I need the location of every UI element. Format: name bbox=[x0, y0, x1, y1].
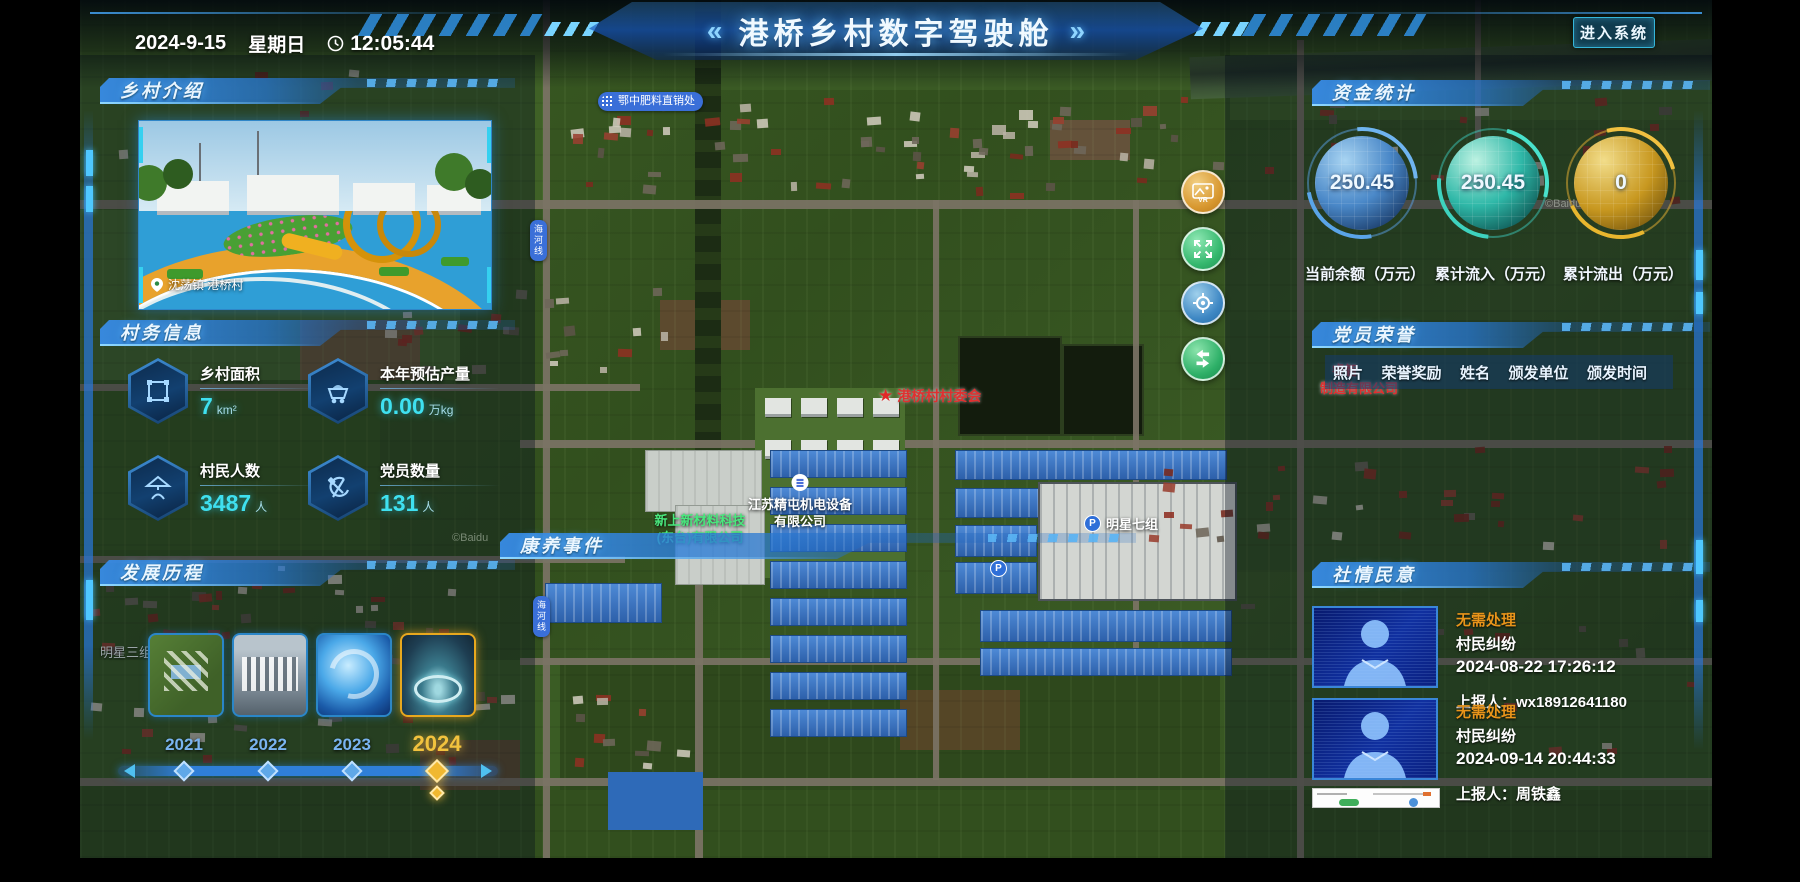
panel-health-header: 康养事件 bbox=[500, 533, 1136, 559]
history-thumb-2022[interactable] bbox=[232, 633, 308, 717]
location-pin-icon bbox=[151, 278, 163, 292]
map-feature bbox=[620, 127, 632, 137]
map-feature bbox=[730, 173, 742, 182]
map-feature bbox=[801, 398, 827, 417]
stat-party-member-count: 党员数量 131人 bbox=[308, 455, 500, 521]
party-emblem-icon bbox=[308, 455, 368, 521]
map-feature bbox=[125, 598, 138, 605]
map-feature bbox=[1331, 531, 1342, 540]
map-feature bbox=[1573, 515, 1584, 522]
map-feature bbox=[134, 707, 145, 717]
gauge-label-outflow: 累计流出（万元） bbox=[1538, 263, 1708, 284]
map-feature bbox=[632, 328, 641, 337]
current-date: 2024-9-15 bbox=[135, 32, 226, 55]
panel-funds-title: 资金统计 bbox=[1312, 80, 1710, 106]
map-feature bbox=[916, 174, 925, 180]
map-feature bbox=[635, 751, 650, 757]
expand-icon bbox=[1192, 238, 1214, 260]
stat-estimated-output: 本年预估产量 0.00万kg bbox=[308, 358, 500, 424]
map-feature bbox=[1143, 159, 1154, 170]
sentiment-item-1[interactable]: 无需处理 村民纠纷 2024-08-22 17:26:12 上报人：wx1891… bbox=[1312, 606, 1627, 712]
photo-caption-text: 沈荡镇 港桥村 bbox=[168, 276, 243, 293]
map-feature bbox=[1181, 97, 1189, 103]
map-feature bbox=[770, 672, 907, 700]
map-feature bbox=[816, 182, 831, 189]
map-feature bbox=[653, 288, 662, 296]
map-feature bbox=[212, 605, 219, 610]
map-feature bbox=[576, 714, 585, 722]
header-deco-left bbox=[358, 14, 543, 36]
timeline-slider[interactable] bbox=[118, 766, 498, 776]
map-feature bbox=[912, 137, 918, 144]
map-feature bbox=[371, 605, 379, 611]
satellite-map[interactable]: 鄂中肥料直销处 ★ 港桥村村委会 江苏精屯机电设备 有限公司 新上新材料科技 (… bbox=[80, 0, 1712, 858]
map-feature bbox=[704, 117, 720, 126]
map-feature bbox=[979, 148, 989, 156]
map-feature bbox=[646, 129, 653, 135]
item-datetime: 2024-09-14 20:44:33 bbox=[1456, 749, 1616, 769]
map-feature bbox=[639, 708, 646, 715]
map-feature bbox=[1213, 162, 1224, 170]
map-feature bbox=[240, 613, 250, 622]
map-feature bbox=[618, 348, 632, 356]
map-feature bbox=[449, 756, 457, 765]
panel-health-title: 康养事件 bbox=[500, 533, 1136, 559]
baidu-watermark-1: ©Baidu bbox=[452, 532, 488, 544]
right-frame-deco bbox=[1694, 110, 1703, 750]
map-feature bbox=[980, 610, 1232, 642]
item-status: 无需处理 bbox=[1456, 609, 1627, 630]
map-feature bbox=[603, 739, 615, 747]
map-feature bbox=[867, 116, 881, 125]
map-feature bbox=[543, 0, 550, 858]
chevron-left-icon: « bbox=[707, 15, 723, 47]
map-feature bbox=[647, 740, 662, 751]
map-feature bbox=[1025, 146, 1033, 156]
panel-history-title: 发展历程 bbox=[100, 560, 515, 586]
map-feature bbox=[1475, 108, 1489, 116]
map-feature bbox=[574, 757, 583, 767]
map-feature bbox=[737, 118, 750, 124]
map-feature bbox=[1491, 501, 1500, 508]
year-2023[interactable]: 2023 bbox=[333, 735, 371, 755]
map-feature bbox=[448, 588, 456, 595]
map-feature bbox=[356, 606, 363, 613]
map-feature bbox=[841, 178, 850, 188]
map-feature bbox=[609, 126, 621, 134]
cart-icon bbox=[308, 358, 368, 424]
map-feature bbox=[1278, 466, 1286, 472]
map-feature bbox=[597, 698, 608, 705]
map-feature bbox=[980, 648, 1232, 676]
map-feature bbox=[1656, 480, 1665, 488]
item-reporter: 上报人：周铁鑫 bbox=[1456, 783, 1616, 804]
map-feature bbox=[770, 450, 907, 478]
panel-intro-title: 乡村介绍 bbox=[100, 78, 515, 104]
map-feature bbox=[1071, 141, 1078, 148]
map-feature bbox=[1399, 531, 1412, 539]
map-feature bbox=[770, 709, 907, 737]
enter-system-button[interactable]: 进入系统 bbox=[1573, 17, 1655, 48]
honors-table-header: 照片 荣誉奖励 姓名 颁发单位 颁发时间 bbox=[1325, 355, 1673, 389]
panel-honors-title: 党员荣誉 bbox=[1312, 322, 1710, 348]
map-feature bbox=[1058, 141, 1072, 149]
villager-icon bbox=[128, 455, 188, 521]
svg-text:VR: VR bbox=[1198, 197, 1208, 204]
map-feature bbox=[837, 398, 863, 417]
map-feature bbox=[300, 111, 309, 117]
map-feature bbox=[1053, 117, 1064, 124]
reporter-photo bbox=[1312, 698, 1438, 780]
panel-history-header: 发展历程 bbox=[100, 560, 515, 586]
map-feature bbox=[645, 450, 762, 512]
map-feature bbox=[1543, 541, 1554, 549]
map-feature bbox=[770, 561, 907, 589]
stat-label: 本年预估产量 bbox=[380, 363, 500, 384]
map-feature bbox=[824, 98, 834, 105]
map-feature bbox=[740, 104, 752, 112]
panel-sentiment-title: 社情民意 bbox=[1312, 562, 1710, 588]
sentiment-item-3-thumb[interactable] bbox=[1312, 788, 1440, 808]
map-feature bbox=[1180, 523, 1192, 529]
map-feature bbox=[757, 119, 768, 129]
map-feature bbox=[122, 749, 131, 755]
page-title: 港桥乡村数字驾驶舱 bbox=[739, 9, 1054, 53]
map-feature bbox=[976, 186, 983, 195]
map-feature bbox=[556, 298, 570, 305]
map-feature bbox=[1060, 106, 1072, 115]
map-feature bbox=[545, 583, 662, 623]
map-feature bbox=[600, 367, 607, 373]
map-feature bbox=[1454, 513, 1469, 522]
locate-button[interactable] bbox=[1181, 281, 1225, 325]
map-feature bbox=[643, 762, 653, 769]
map-feature bbox=[663, 127, 671, 136]
map-feature bbox=[861, 137, 872, 147]
stat-value: 7km² bbox=[200, 393, 320, 420]
map-feature bbox=[1160, 123, 1167, 129]
panel-affairs-title: 村务信息 bbox=[100, 320, 515, 346]
history-thumb-2023[interactable] bbox=[316, 633, 392, 717]
map-feature bbox=[1660, 540, 1667, 549]
map-feature bbox=[1664, 446, 1671, 453]
map-feature bbox=[318, 718, 333, 726]
photo-caption: 沈荡镇 港桥村 bbox=[151, 276, 243, 293]
panel-intro-header: 乡村介绍 bbox=[100, 78, 515, 104]
switch-map-button[interactable] bbox=[1181, 337, 1225, 381]
panel-honors-header: 党员荣誉 bbox=[1312, 322, 1710, 348]
stat-village-area: 乡村面积 7km² bbox=[128, 358, 320, 424]
map-feature bbox=[476, 692, 485, 702]
map-feature bbox=[1265, 167, 1274, 174]
chevron-right-icon: » bbox=[1070, 15, 1086, 47]
map-feature bbox=[1045, 182, 1054, 191]
map-feature bbox=[1120, 152, 1129, 160]
map-feature bbox=[1363, 468, 1376, 479]
stat-value: 0.00万kg bbox=[380, 393, 500, 420]
map-feature bbox=[1241, 604, 1255, 610]
map-feature bbox=[1196, 528, 1210, 538]
map-feature bbox=[597, 148, 604, 158]
map-feature bbox=[142, 729, 154, 736]
gauge-total-inflow: 250.45 bbox=[1446, 136, 1540, 230]
map-feature bbox=[92, 609, 101, 616]
vr-panorama-button[interactable]: VR bbox=[1181, 170, 1225, 214]
map-feature bbox=[586, 182, 593, 187]
map-feature bbox=[403, 312, 413, 318]
map-feature bbox=[385, 744, 398, 753]
map-feature bbox=[1474, 446, 1485, 453]
map-feature bbox=[771, 149, 781, 154]
photo-playground bbox=[139, 211, 491, 309]
map-feature bbox=[648, 172, 661, 177]
col-issue-date: 颁发时间 bbox=[1587, 362, 1647, 383]
map-feature bbox=[1221, 510, 1234, 518]
map-feature bbox=[203, 755, 212, 763]
header-deco-right bbox=[1242, 14, 1427, 36]
panel-funds-header: 资金统计 bbox=[1312, 80, 1710, 106]
gauge-value: 250.45 bbox=[1330, 171, 1394, 195]
map-feature bbox=[1130, 118, 1141, 127]
map-feature bbox=[1660, 469, 1674, 477]
map-feature bbox=[917, 161, 925, 168]
map-feature bbox=[791, 181, 797, 191]
current-weekday: 星期日 bbox=[248, 30, 305, 57]
village-photo: 沈荡镇 港桥村 bbox=[138, 120, 492, 310]
map-feature bbox=[933, 200, 939, 780]
map-feature bbox=[119, 150, 128, 159]
map-feature bbox=[238, 587, 247, 595]
map-feature bbox=[1143, 106, 1157, 115]
map-feature bbox=[1116, 128, 1131, 134]
col-name: 姓名 bbox=[1460, 362, 1490, 383]
map-feature bbox=[661, 332, 669, 342]
map-feature bbox=[1459, 116, 1467, 122]
map-feature bbox=[873, 398, 899, 417]
map-feature bbox=[714, 142, 724, 151]
map-feature bbox=[573, 695, 583, 703]
map-feature bbox=[487, 697, 497, 703]
map-feature bbox=[692, 99, 699, 105]
gauge-value: 250.45 bbox=[1461, 171, 1525, 195]
stat-label: 党员数量 bbox=[380, 460, 500, 481]
map-feature bbox=[770, 635, 907, 663]
map-feature bbox=[642, 184, 656, 194]
history-thumb-2021[interactable] bbox=[148, 633, 224, 717]
map-feature bbox=[765, 398, 791, 417]
map-feature bbox=[1171, 135, 1178, 142]
timeline-next-arrow[interactable] bbox=[481, 764, 492, 778]
map-feature bbox=[148, 613, 159, 622]
map-feature bbox=[661, 103, 670, 110]
map-feature bbox=[1650, 124, 1659, 132]
map-feature bbox=[770, 487, 907, 515]
map-feature bbox=[550, 361, 558, 367]
map-feature bbox=[955, 450, 1227, 480]
item-status: 无需处理 bbox=[1456, 701, 1616, 722]
stat-label: 村民人数 bbox=[200, 460, 320, 481]
col-honor: 荣誉奖励 bbox=[1381, 362, 1441, 383]
item-category: 村民纠纷 bbox=[1456, 725, 1616, 746]
map-feature bbox=[1441, 500, 1453, 506]
map-feature bbox=[371, 597, 385, 602]
title-plaque: « 港桥乡村数字驾驶舱 » bbox=[589, 2, 1203, 60]
crosshair-icon bbox=[1192, 292, 1214, 314]
map-feature bbox=[335, 589, 344, 595]
history-thumb-2024[interactable] bbox=[400, 633, 476, 717]
map-feature bbox=[1399, 491, 1407, 498]
map-feature bbox=[913, 151, 921, 160]
year-2021[interactable]: 2021 bbox=[165, 735, 203, 755]
gauge-total-outflow: 0 bbox=[1574, 136, 1668, 230]
map-feature bbox=[501, 695, 516, 704]
map-feature bbox=[909, 111, 920, 122]
stat-label: 乡村面积 bbox=[200, 363, 320, 384]
map-feature bbox=[950, 128, 960, 138]
map-feature bbox=[563, 325, 575, 336]
gauge-current-balance: 250.45 bbox=[1315, 136, 1409, 230]
map-feature bbox=[109, 647, 117, 656]
timeline-prev-arrow[interactable] bbox=[124, 764, 135, 778]
map-feature bbox=[1258, 532, 1270, 541]
map-feature bbox=[1659, 106, 1673, 114]
map-feature bbox=[365, 621, 377, 629]
map-feature bbox=[1163, 482, 1176, 492]
area-icon bbox=[128, 358, 188, 424]
map-feature bbox=[560, 350, 569, 356]
map-feature bbox=[393, 622, 404, 630]
map-feature bbox=[1164, 468, 1173, 476]
map-feature bbox=[608, 772, 703, 830]
stat-villager-count: 村民人数 3487人 bbox=[128, 455, 320, 521]
item-category: 村民纠纷 bbox=[1456, 633, 1627, 654]
map-feature bbox=[1052, 123, 1062, 130]
panel-affairs-header: 村务信息 bbox=[100, 320, 515, 346]
map-feature bbox=[1137, 177, 1148, 183]
map-feature bbox=[1491, 493, 1503, 500]
col-photo: 照片 bbox=[1333, 362, 1363, 383]
map-feature bbox=[955, 562, 1037, 594]
col-issuer: 颁发单位 bbox=[1508, 362, 1568, 383]
map-feature bbox=[1019, 110, 1032, 119]
reporter-photo bbox=[1312, 606, 1438, 688]
map-feature bbox=[520, 440, 1712, 448]
map-feature bbox=[545, 299, 554, 308]
year-2024[interactable]: 2024 bbox=[413, 731, 462, 757]
map-feature bbox=[992, 125, 1006, 135]
gauge-value: 0 bbox=[1615, 171, 1627, 195]
map-feature bbox=[143, 601, 157, 609]
item-datetime: 2024-08-22 17:26:12 bbox=[1456, 657, 1627, 677]
map-feature bbox=[1164, 512, 1174, 518]
map-feature bbox=[198, 593, 211, 602]
map-feature bbox=[1216, 536, 1224, 543]
year-2022[interactable]: 2022 bbox=[249, 735, 287, 755]
dashboard: 鄂中肥料直销处 ★ 港桥村村委会 江苏精屯机电设备 有限公司 新上新材料科技 (… bbox=[0, 0, 1800, 882]
vr-photo-icon: VR bbox=[1191, 180, 1215, 204]
map-feature bbox=[1028, 121, 1039, 129]
map-feature bbox=[958, 336, 1062, 436]
fullscreen-button[interactable] bbox=[1181, 227, 1225, 271]
map-feature bbox=[677, 750, 691, 758]
map-feature bbox=[1266, 502, 1273, 511]
map-feature bbox=[1498, 521, 1505, 528]
map-feature bbox=[1149, 534, 1160, 541]
map-feature bbox=[967, 172, 978, 177]
map-feature bbox=[572, 134, 583, 144]
map-feature bbox=[1062, 344, 1144, 436]
map-feature bbox=[1313, 495, 1328, 504]
map-feature bbox=[876, 147, 885, 153]
stat-value: 131人 bbox=[380, 490, 500, 517]
panel-sentiment-header: 社情民意 bbox=[1312, 562, 1710, 588]
map-feature bbox=[733, 154, 748, 163]
map-feature bbox=[1636, 648, 1646, 658]
map-feature bbox=[1010, 193, 1023, 199]
map-feature bbox=[516, 290, 528, 300]
header-deco-right-bright bbox=[1194, 22, 1250, 36]
swap-arrows-icon bbox=[1192, 348, 1214, 370]
map-feature bbox=[770, 598, 907, 626]
clock-icon bbox=[327, 35, 344, 52]
map-feature bbox=[1329, 115, 1336, 124]
map-feature bbox=[1297, 40, 1304, 858]
map-feature bbox=[1355, 505, 1363, 511]
map-feature bbox=[216, 591, 222, 600]
map-feature bbox=[1443, 490, 1455, 498]
stat-value: 3487人 bbox=[200, 490, 320, 517]
map-feature bbox=[283, 587, 295, 593]
